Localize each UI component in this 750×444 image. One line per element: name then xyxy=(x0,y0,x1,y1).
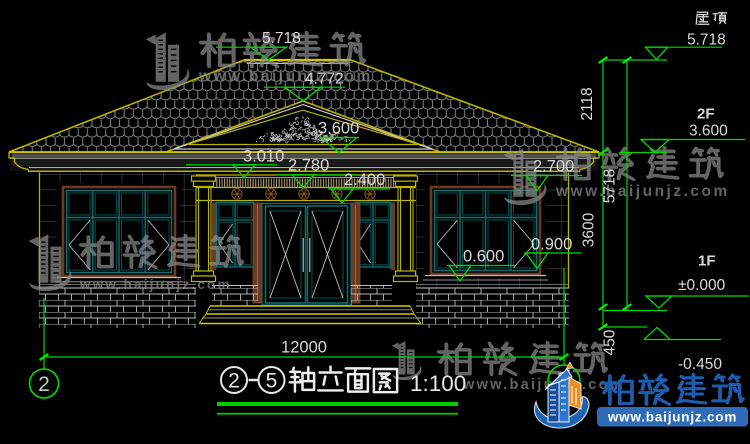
svg-text:2.780: 2.780 xyxy=(288,157,329,175)
svg-text:12000: 12000 xyxy=(281,339,327,357)
svg-text:3.600: 3.600 xyxy=(689,123,728,140)
svg-text:-0.450: -0.450 xyxy=(678,356,722,373)
svg-text:5.718: 5.718 xyxy=(262,30,301,47)
svg-text:0.900: 0.900 xyxy=(531,236,572,254)
svg-text:www.baijunjz.com: www.baijunjz.com xyxy=(79,277,232,292)
svg-text:3.010: 3.010 xyxy=(243,148,284,166)
svg-text:2: 2 xyxy=(38,373,50,396)
svg-text:1F: 1F xyxy=(698,253,716,270)
svg-text:2.700: 2.700 xyxy=(533,158,574,176)
svg-text:3.600: 3.600 xyxy=(318,120,359,138)
svg-text:2: 2 xyxy=(228,370,240,393)
svg-text:1:100: 1:100 xyxy=(410,371,466,396)
svg-text:www.baijunjz.com: www.baijunjz.com xyxy=(555,183,730,200)
svg-text:5: 5 xyxy=(266,370,278,393)
svg-text:±0.000: ±0.000 xyxy=(678,277,726,294)
svg-text:2118: 2118 xyxy=(579,87,596,120)
svg-text:4.772: 4.772 xyxy=(305,71,344,88)
svg-text:5718: 5718 xyxy=(602,169,619,203)
svg-text:www.baijunjz.com: www.baijunjz.com xyxy=(462,377,625,393)
svg-text:2.400: 2.400 xyxy=(344,171,385,189)
svg-text:5.718: 5.718 xyxy=(687,32,726,49)
svg-text:2F: 2F xyxy=(697,106,715,123)
svg-text:www.baijunjz.com: www.baijunjz.com xyxy=(198,68,373,85)
svg-text:3600: 3600 xyxy=(581,212,598,247)
svg-text:0.600: 0.600 xyxy=(463,248,504,266)
svg-text:www.baijunjz.com: www.baijunjz.com xyxy=(607,410,737,425)
svg-text:450: 450 xyxy=(602,329,619,355)
